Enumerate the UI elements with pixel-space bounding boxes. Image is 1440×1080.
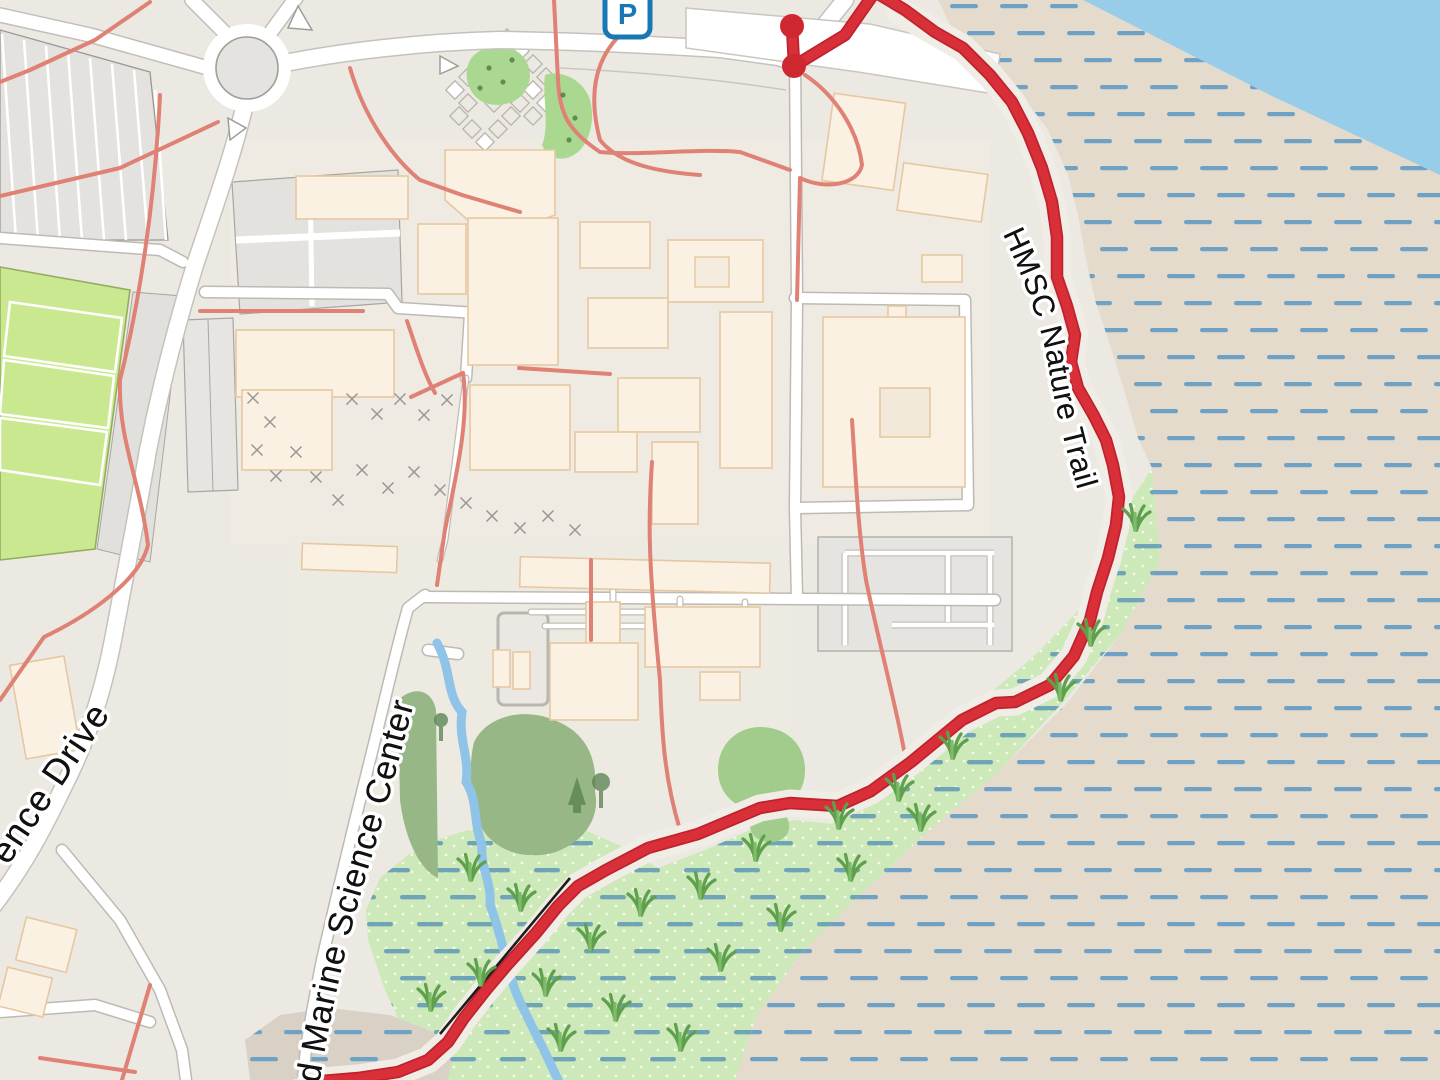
svg-text:P: P bbox=[618, 0, 637, 31]
